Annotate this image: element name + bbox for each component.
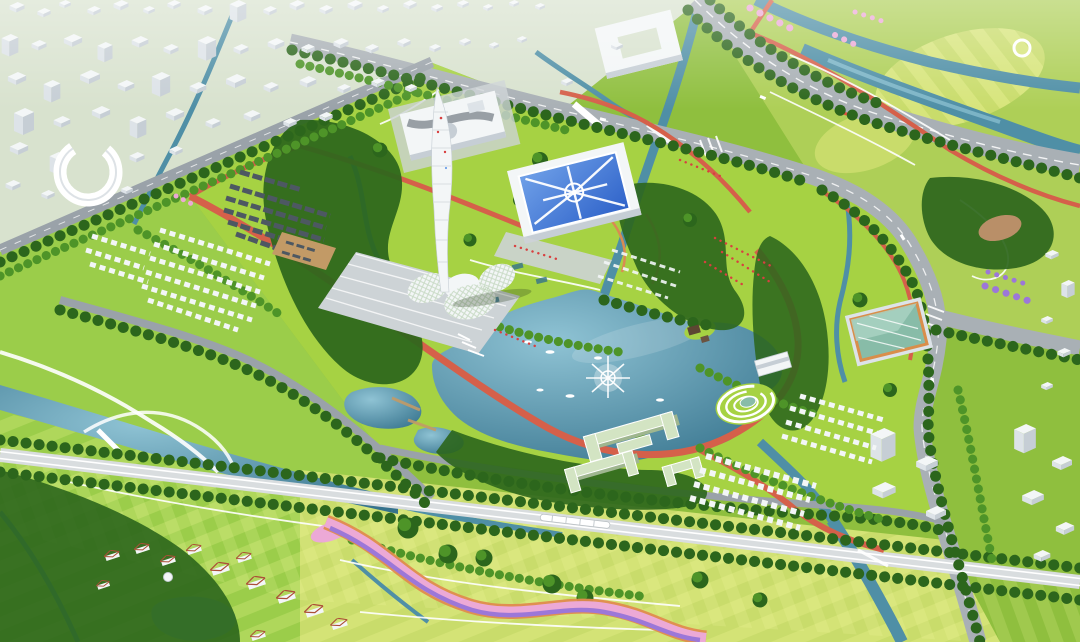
- rendering-canvas: [0, 0, 1080, 642]
- aerial-masterplan-rendering: [0, 0, 1080, 642]
- village-silo: [164, 573, 173, 582]
- atmospheric-haze: [0, 0, 1080, 110]
